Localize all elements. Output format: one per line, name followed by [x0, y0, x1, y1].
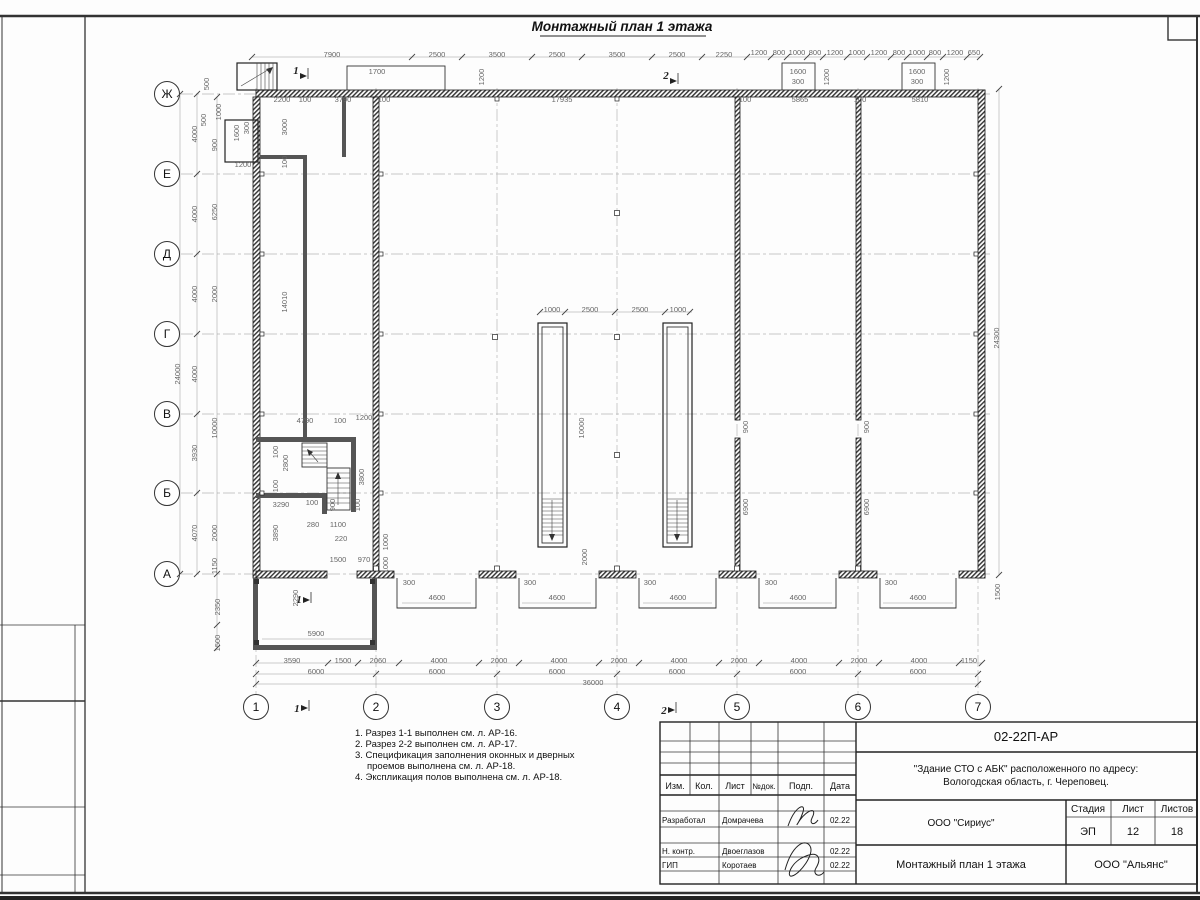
dim-label: 100	[854, 95, 867, 104]
dim-label: 4000	[431, 656, 448, 665]
dim-label: 10000	[577, 418, 586, 439]
svg-text:4: 4	[614, 700, 621, 714]
floor-plan-canvas: Монтажный план 1 этажа	[0, 0, 1200, 900]
dim-label: 3930	[190, 445, 199, 462]
svg-text:Б: Б	[163, 486, 171, 500]
dim-label: 1200	[235, 160, 252, 169]
dim-label: 4600	[429, 593, 446, 602]
svg-text:А: А	[163, 567, 171, 581]
sheet-corner-box	[1168, 16, 1197, 40]
dim-label: 4000	[911, 656, 928, 665]
dim-label: 1150	[961, 656, 977, 665]
svg-text:7: 7	[975, 700, 982, 714]
dimension-lines	[180, 57, 999, 684]
stamp-col-kol: Кол.	[695, 781, 713, 791]
axis-bubbles-rows: Ж Е Д Г В Б А	[155, 82, 180, 587]
project-name-line1: "Здание СТО с АБК" расположенного по адр…	[914, 764, 1139, 775]
note-line: 1. Разрез 1-1 выполнен см. л. АР-16.	[355, 728, 517, 739]
dim-label: 2500	[582, 305, 599, 314]
dim-label: 1200	[942, 69, 951, 86]
dim-label: 1200	[822, 69, 831, 86]
dim-label: 1000	[381, 557, 390, 574]
contractor-company: ООО "Альянс"	[1094, 859, 1168, 871]
section-mark: 2	[662, 70, 669, 82]
note-line: 2. Разрез 2-2 выполнен см. л. АР-17.	[355, 739, 517, 750]
axis-bubble: Д	[155, 242, 180, 267]
sheet-label: Лист	[1122, 804, 1144, 815]
design-company: ООО "Сириус"	[927, 818, 995, 829]
notes-block: 1. Разрез 1-1 выполнен см. л. АР-16. 2. …	[355, 728, 575, 783]
svg-text:Ж: Ж	[161, 87, 172, 101]
dim-label: 3800	[357, 469, 366, 486]
dim-label: 1200	[827, 48, 844, 57]
dim-label: 4000	[190, 126, 199, 143]
svg-text:3: 3	[494, 700, 501, 714]
stamp-name: Двоеглазов	[722, 847, 765, 856]
section-mark: 2	[660, 705, 667, 717]
dim-label: 100	[739, 95, 752, 104]
dim-label: 1500	[213, 635, 222, 652]
sheet-number: 12	[1127, 826, 1139, 838]
project-name-line2: Вологодская область, г. Череповец.	[943, 776, 1109, 788]
dim-label: 300	[885, 578, 898, 587]
dim-label: 1100	[330, 520, 346, 529]
dim-label: 1600	[909, 67, 926, 76]
dim-label: 24300	[992, 328, 1001, 349]
dim-label: 1200	[477, 69, 486, 86]
stamp-role: Н. контр.	[662, 847, 695, 856]
stamp-col-izm: Изм.	[665, 781, 684, 791]
title-block: Изм. Кол. Лист №док. Подп. Дата Разработ…	[660, 722, 1197, 884]
dim-label: 6000	[669, 667, 686, 676]
axis-bubble: Б	[155, 481, 180, 506]
dim-label: 3890	[271, 525, 280, 542]
dim-label: 4600	[790, 593, 807, 602]
dim-label: 1000	[670, 305, 687, 314]
dim-label: 3500	[609, 50, 626, 59]
stamp-col-data: Дата	[830, 781, 850, 791]
dim-label: 2200	[274, 95, 291, 104]
dim-label: 300	[242, 122, 251, 135]
dim-label: 2500	[549, 50, 566, 59]
dim-label: 500	[199, 114, 208, 127]
dim-label: 100	[271, 480, 280, 493]
axis-bubble: 7	[966, 695, 991, 720]
stamp-date: 02.22	[830, 847, 851, 856]
dim-label: 36000	[583, 678, 604, 687]
stage-value: ЭП	[1080, 826, 1096, 838]
dim-label: 24000	[173, 364, 182, 385]
stamp-name: Домрачева	[722, 816, 764, 825]
stamp-col-podp: Подп.	[789, 781, 813, 791]
dim-label: 300	[765, 578, 778, 587]
dim-label: 7900	[324, 50, 341, 59]
dim-label: 500	[202, 78, 211, 91]
dim-label: 900	[862, 421, 871, 434]
annotations: 7900250035002500350025002250120080010008…	[173, 48, 1002, 717]
stamp-name: Коротаев	[722, 861, 757, 870]
dim-label: 6900	[741, 499, 750, 516]
dim-label: 1000	[214, 104, 223, 121]
dim-label: 1150	[210, 558, 219, 574]
dim-label: 4600	[910, 593, 927, 602]
sheets-label: Листов	[1161, 804, 1194, 815]
dim-label: 6250	[210, 204, 219, 221]
stamp-col-ndok: №док.	[752, 782, 775, 791]
dim-label: 4600	[670, 593, 687, 602]
stamp-col-list: Лист	[725, 781, 745, 791]
note-line: проемов выполнена см. л. АР-18.	[367, 761, 515, 772]
axis-bubble: 3	[485, 695, 510, 720]
dim-label: 1000	[909, 48, 926, 57]
stamp-date: 02.22	[830, 816, 851, 825]
section-mark: 1	[296, 594, 302, 606]
dim-label: 3290	[273, 500, 290, 509]
axis-bubble: 1	[244, 695, 269, 720]
dim-label: 6000	[429, 667, 446, 676]
dim-label: 1000	[381, 534, 390, 551]
dim-label: 2000	[851, 656, 868, 665]
dim-label: 6000	[790, 667, 807, 676]
stamp-date: 02.22	[830, 861, 851, 870]
svg-text:6: 6	[855, 700, 862, 714]
dim-label: 2060	[370, 656, 387, 665]
doc-number: 02-22П-АР	[994, 729, 1058, 744]
dim-label: 300	[524, 578, 537, 587]
sheets-total: 18	[1171, 826, 1183, 838]
dim-label: 4000	[190, 206, 199, 223]
dim-label: 1000	[544, 305, 561, 314]
note-line: 4. Экспликация полов выполнена см. л. АР…	[355, 772, 562, 783]
dim-label: 6900	[862, 499, 871, 516]
dim-label: 1500	[335, 656, 352, 665]
dim-label: 4790	[297, 416, 314, 425]
dim-label: 1600	[790, 67, 807, 76]
stamp-role: ГИП	[662, 861, 678, 870]
axis-bubble: Г	[155, 322, 180, 347]
axis-bubble: 2	[364, 695, 389, 720]
dim-label: 2500	[632, 305, 649, 314]
dim-label: 1200	[871, 48, 888, 57]
dim-label: 5810	[912, 95, 929, 104]
svg-text:Д: Д	[163, 247, 171, 261]
stage-label: Стадия	[1071, 804, 1105, 815]
dim-label: 1500	[330, 555, 347, 564]
svg-text:Е: Е	[163, 167, 171, 181]
axis-bubble: Ж	[155, 82, 180, 107]
dim-label: 970	[358, 555, 371, 564]
dim-label: 650	[968, 48, 981, 57]
dim-label: 2500	[669, 50, 686, 59]
axis-bubble: 5	[725, 695, 750, 720]
axis-bubble: 6	[846, 695, 871, 720]
dim-label: 1200	[947, 48, 964, 57]
dim-label: 3500	[489, 50, 506, 59]
dim-label: 800	[809, 48, 822, 57]
dim-label: 300	[403, 578, 416, 587]
dim-label: 100	[306, 498, 319, 507]
dim-label: 3790	[335, 95, 352, 104]
dim-label: 4000	[190, 286, 199, 303]
dim-label: 2000	[210, 286, 219, 303]
dim-label: 17935	[552, 95, 573, 104]
dim-label: 100	[299, 95, 312, 104]
svg-text:1: 1	[253, 700, 260, 714]
dim-label: 800	[929, 48, 942, 57]
dim-label: 1200	[751, 48, 768, 57]
dim-label: 3590	[284, 656, 301, 665]
dim-label: 4000	[551, 656, 568, 665]
dim-label: 2500	[429, 50, 446, 59]
dim-label: 1500	[993, 584, 1002, 601]
stamp-role: Разработал	[662, 816, 706, 825]
dim-label: 1700	[369, 67, 386, 76]
axis-bubble: Е	[155, 162, 180, 187]
dim-label: 4600	[549, 593, 566, 602]
page-title: Монтажный план 1 этажа	[532, 19, 713, 34]
dim-label: 900	[328, 499, 337, 512]
inspection-pit	[663, 323, 692, 547]
svg-text:В: В	[163, 407, 171, 421]
dim-label: 2000	[731, 656, 748, 665]
dim-label: 800	[773, 48, 786, 57]
dim-label: 100	[353, 499, 362, 512]
svg-text:2: 2	[373, 700, 380, 714]
section-mark: 1	[293, 65, 299, 77]
dim-label: 2000	[491, 656, 508, 665]
dim-label: 5865	[792, 95, 809, 104]
axis-bubble: А	[155, 562, 180, 587]
drawing-sheet: Монтажный план 1 этажа	[0, 0, 1200, 900]
dim-label: 4000	[671, 656, 688, 665]
dim-label: 2000	[580, 549, 589, 566]
dim-label: 2000	[210, 525, 219, 542]
section-mark: 1	[294, 703, 300, 715]
dim-label: 6000	[910, 667, 927, 676]
dim-label: 220	[335, 534, 348, 543]
dim-label: 4070	[190, 525, 199, 542]
inspection-pit	[538, 323, 567, 547]
dim-label: 2800	[281, 455, 290, 472]
dim-label: 280	[307, 520, 320, 529]
axis-bubble: В	[155, 402, 180, 427]
dim-label: 800	[893, 48, 906, 57]
entrance-canopy	[347, 66, 445, 90]
dim-label: 2350	[213, 599, 222, 616]
dim-label: 5900	[308, 629, 325, 638]
dim-label: 4000	[791, 656, 808, 665]
signature	[788, 807, 818, 826]
dim-label: 300	[792, 77, 805, 86]
dim-label: 300	[911, 77, 924, 86]
dim-label: 1600	[232, 125, 241, 142]
svg-text:5: 5	[734, 700, 741, 714]
dim-label: 6000	[308, 667, 325, 676]
svg-text:Г: Г	[164, 327, 171, 341]
dim-label: 4000	[190, 366, 199, 383]
axis-bubble: 4	[605, 695, 630, 720]
dim-label: 900	[210, 139, 219, 152]
dim-label: 1000	[849, 48, 866, 57]
exterior-stair	[237, 63, 277, 90]
axis-bubbles-cols: 1 2 3 4 5 6 7	[244, 695, 991, 720]
dim-label: 100	[280, 156, 289, 169]
dim-label: 14010	[280, 292, 289, 313]
dim-label: 100	[378, 95, 391, 104]
dim-label: 100	[334, 416, 347, 425]
note-line: 3. Спецификация заполнения оконных и две…	[355, 750, 575, 761]
dim-label: 2000	[611, 656, 628, 665]
drawing-name: Монтажный план 1 этажа	[896, 859, 1027, 871]
dim-label: 900	[741, 421, 750, 434]
dim-label: 3000	[280, 119, 289, 136]
dim-label: 6000	[549, 667, 566, 676]
dim-label: 1200	[356, 413, 373, 422]
dim-label: 2250	[716, 50, 733, 59]
dim-label: 300	[644, 578, 657, 587]
dim-label: 1000	[789, 48, 806, 57]
dim-label: 100	[271, 446, 280, 459]
dim-label: 10000	[210, 418, 219, 439]
